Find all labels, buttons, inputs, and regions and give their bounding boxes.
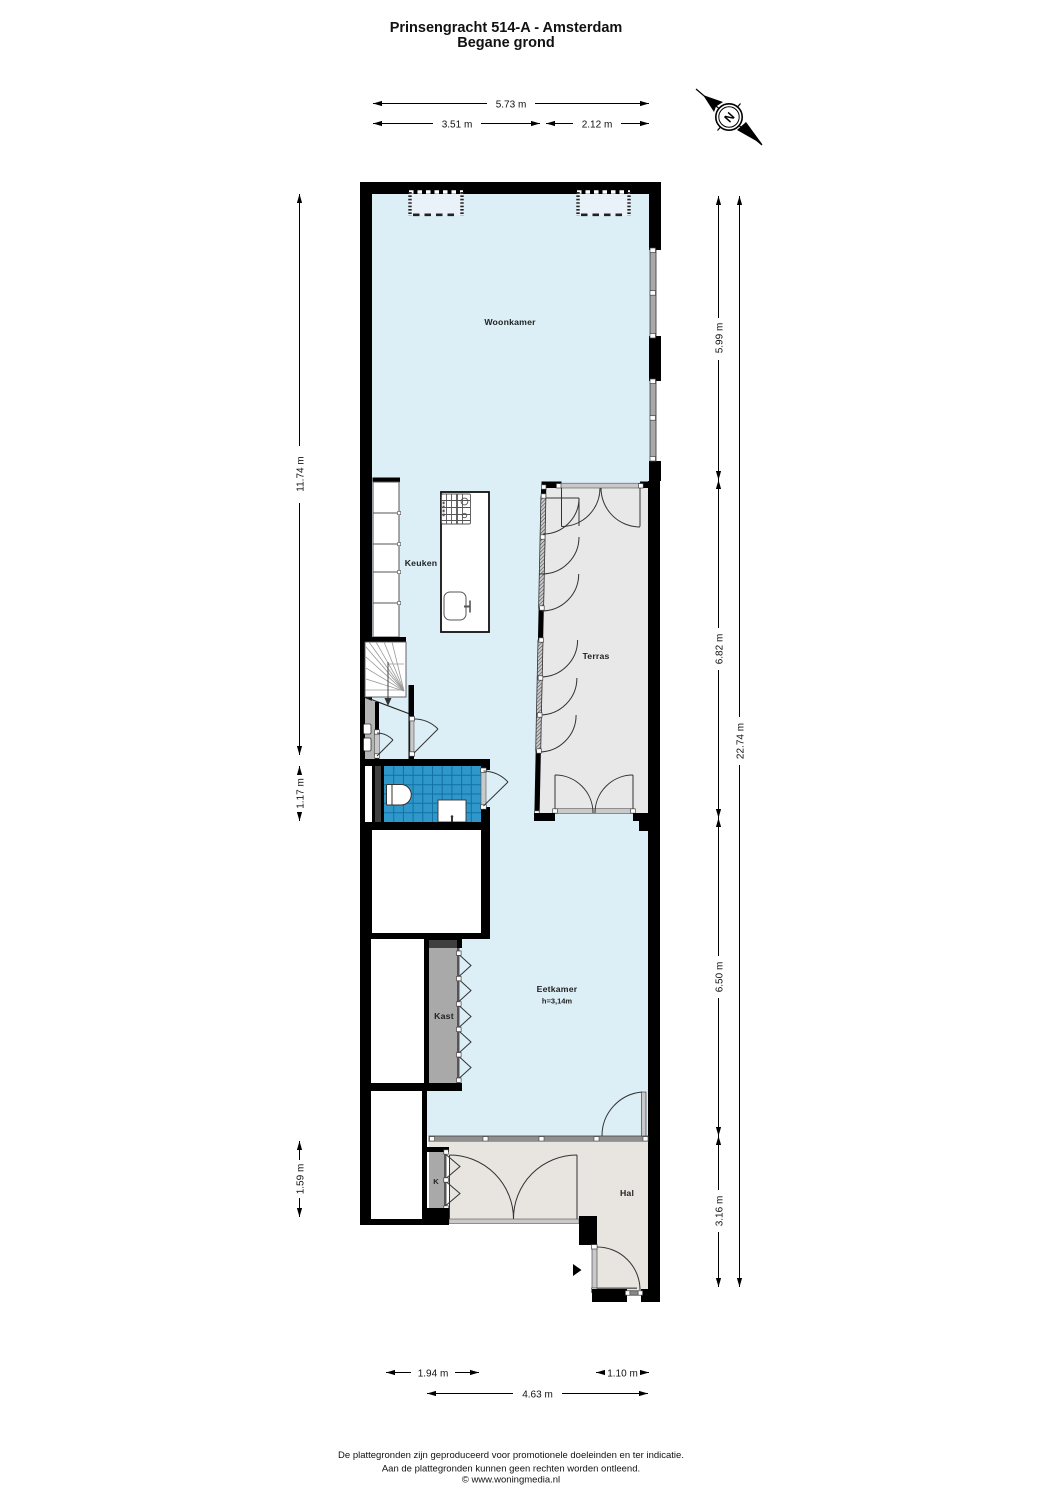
svg-text:De plattegronden zijn geproduc: De plattegronden zijn geproduceerd voor …	[338, 1450, 684, 1461]
svg-text:22.74 m: 22.74 m	[736, 723, 747, 759]
svg-text:1.10 m: 1.10 m	[607, 1369, 638, 1380]
svg-text:1.94 m: 1.94 m	[418, 1369, 449, 1380]
svg-text:Aan de plattegronden kunnen ge: Aan de plattegronden kunnen geen rechten…	[382, 1464, 640, 1475]
svg-text:6.82 m: 6.82 m	[715, 634, 726, 665]
svg-text:5.99 m: 5.99 m	[715, 323, 726, 354]
svg-text:Kast: Kast	[434, 1011, 454, 1021]
svg-text:1.59 m: 1.59 m	[296, 1164, 307, 1195]
svg-text:Eetkamer: Eetkamer	[537, 984, 578, 994]
svg-text:h=3,14m: h=3,14m	[542, 997, 573, 1006]
svg-text:4.63 m: 4.63 m	[522, 1390, 553, 1401]
svg-text:3.51 m: 3.51 m	[442, 120, 473, 131]
svg-text:5.73 m: 5.73 m	[496, 100, 527, 111]
svg-text:11.74 m: 11.74 m	[296, 456, 307, 491]
svg-text:Begane grond: Begane grond	[457, 35, 554, 51]
svg-text:3.16 m: 3.16 m	[715, 1196, 726, 1227]
svg-text:Hal: Hal	[620, 1188, 634, 1198]
svg-text:1.17 m: 1.17 m	[296, 778, 307, 809]
svg-text:6.50 m: 6.50 m	[715, 962, 726, 993]
svg-text:Prinsengracht 514-A - Amsterda: Prinsengracht 514-A - Amsterdam	[390, 20, 623, 36]
svg-text:Woonkamer: Woonkamer	[484, 317, 536, 327]
svg-text:© www.woningmedia.nl: © www.woningmedia.nl	[462, 1475, 560, 1486]
svg-text:Terras: Terras	[582, 651, 609, 661]
svg-text:K: K	[433, 1177, 439, 1186]
svg-text:Keuken: Keuken	[405, 558, 438, 568]
svg-text:2.12 m: 2.12 m	[582, 120, 613, 131]
